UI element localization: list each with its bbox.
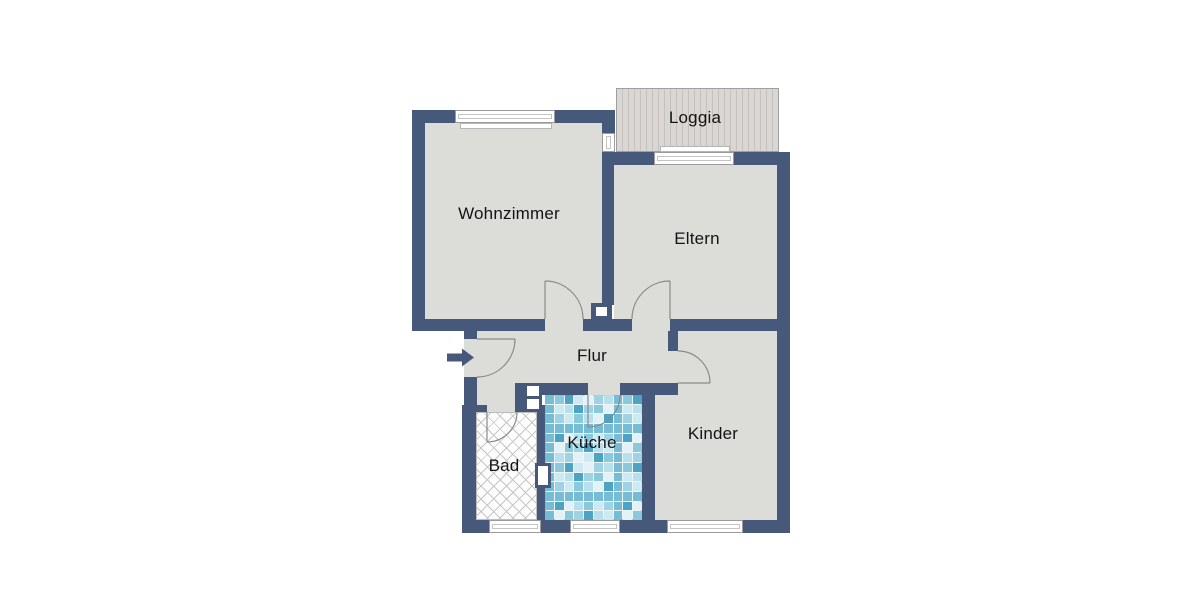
kitchen-tile (555, 414, 564, 423)
room-flur-floor (477, 331, 668, 383)
kitchen-tile (555, 424, 564, 433)
kitchen-tile (584, 482, 593, 491)
kitchen-tile (633, 434, 642, 443)
kitchen-tile (633, 453, 642, 462)
window (667, 520, 743, 533)
kitchen-tile (604, 511, 613, 520)
kitchen-tile (565, 395, 574, 404)
kitchen-tile (594, 453, 603, 462)
kitchen-tile (555, 473, 564, 482)
kitchen-tile (633, 414, 642, 423)
kitchen-tile (633, 473, 642, 482)
wall-segment (412, 110, 425, 331)
floor-gap (668, 351, 678, 383)
kitchen-tile (584, 395, 593, 404)
kitchen-tile (614, 482, 623, 491)
room-label-kinder: Kinder (688, 424, 738, 444)
window-sill (460, 123, 552, 129)
kitchen-tile (604, 424, 613, 433)
wall-segment (464, 319, 477, 339)
wall-segment (464, 377, 477, 405)
kitchen-tile (594, 482, 603, 491)
room-kinder-floor (655, 395, 777, 520)
window (455, 110, 555, 123)
kitchen-tile (555, 502, 564, 511)
kitchen-tile (584, 453, 593, 462)
kitchen-tile (584, 424, 593, 433)
kitchen-tile (594, 492, 603, 501)
kitchen-tile (555, 463, 564, 472)
kitchen-tile (584, 492, 593, 501)
kitchen-tile (565, 482, 574, 491)
kitchen-tile (574, 463, 583, 472)
kitchen-tile (623, 405, 632, 414)
kitchen-tile (574, 395, 583, 404)
kitchen-tile (604, 463, 613, 472)
shaft-inner (527, 386, 539, 396)
kitchen-tile (623, 434, 632, 443)
room-label-loggia: Loggia (669, 108, 721, 128)
kitchen-tile (584, 511, 593, 520)
kitchen-tile (574, 511, 583, 520)
kitchen-tile (574, 473, 583, 482)
kitchen-tile (614, 414, 623, 423)
room-kinder-floor-upper (678, 331, 777, 395)
kitchen-tile (594, 414, 603, 423)
wall-segment (412, 319, 545, 331)
kitchen-tile (604, 482, 613, 491)
kitchen-tile (623, 482, 632, 491)
kitchen-tile (565, 492, 574, 501)
kitchen-tile (594, 511, 603, 520)
kitchen-tile (555, 395, 564, 404)
room-label-flur: Flur (577, 346, 607, 366)
room-label-wohnzimmer: Wohnzimmer (458, 204, 560, 224)
room-label-eltern: Eltern (674, 229, 720, 249)
kitchen-tile (574, 502, 583, 511)
kitchen-tile (633, 502, 642, 511)
kitchen-tile (565, 405, 574, 414)
kitchen-tile (555, 453, 564, 462)
wall-segment (412, 110, 455, 123)
kitchen-tile (633, 405, 642, 414)
kitchen-tile (614, 395, 623, 404)
kitchen-tile (565, 511, 574, 520)
kitchen-tile (633, 482, 642, 491)
floor-gap (545, 319, 583, 331)
kitchen-tile (614, 424, 623, 433)
wall-segment (602, 152, 654, 165)
kitchen-tile (574, 492, 583, 501)
kitchen-tile (604, 453, 613, 462)
kitchen-tile (594, 502, 603, 511)
wall-segment (670, 319, 777, 331)
wall-segment (620, 520, 667, 533)
kitchen-tile (604, 405, 613, 414)
kitchen-tile (614, 453, 623, 462)
kitchen-tile (545, 492, 554, 501)
kitchen-tile (574, 482, 583, 491)
window (570, 520, 620, 533)
room-label-kueche: Küche (567, 433, 616, 453)
kitchen-tile (565, 473, 574, 482)
kitchen-tile (584, 405, 593, 414)
kitchen-tile (574, 453, 583, 462)
kitchen-tile (623, 395, 632, 404)
kitchen-tile (614, 463, 623, 472)
floor-gap (632, 319, 670, 331)
kitchen-tile (565, 502, 574, 511)
kitchen-tile (614, 511, 623, 520)
room-label-bad: Bad (489, 456, 520, 476)
floor-gap (588, 383, 620, 395)
kitchen-tile (584, 414, 593, 423)
wall-segment (473, 405, 487, 412)
kitchen-tile (594, 424, 603, 433)
kitchen-tile (604, 502, 613, 511)
window (489, 520, 541, 533)
wall-segment (642, 383, 655, 520)
wall-segment (602, 152, 614, 305)
kitchen-tile (604, 395, 613, 404)
kitchen-tile (545, 434, 554, 443)
window-sill (660, 146, 730, 152)
kitchen-tile (555, 511, 564, 520)
kitchen-tile (545, 414, 554, 423)
kitchen-tile (545, 511, 554, 520)
kitchen-tile (623, 473, 632, 482)
wall-segment (602, 110, 615, 133)
kitchen-tile (545, 443, 554, 452)
kitchen-tile (565, 453, 574, 462)
kitchen-tile (623, 502, 632, 511)
kitchen-tile (633, 463, 642, 472)
kitchen-tile (565, 424, 574, 433)
kitchen-tile (623, 453, 632, 462)
floor-gap (464, 339, 477, 377)
kitchen-tile (633, 511, 642, 520)
kitchen-tile (623, 463, 632, 472)
wall-segment (542, 383, 588, 395)
kitchen-tile (594, 405, 603, 414)
kitchen-tile (574, 414, 583, 423)
kitchen-tile (545, 424, 554, 433)
kitchen-tile (633, 443, 642, 452)
kitchen-tile (555, 405, 564, 414)
kitchen-tile (594, 473, 603, 482)
wall-segment (777, 152, 790, 533)
kitchen-tile (565, 463, 574, 472)
kitchen-tile (623, 414, 632, 423)
floor-plan: Wohnzimmer Loggia Eltern Flur Bad Küche … (0, 0, 1200, 600)
window (602, 133, 615, 152)
kitchen-tile (565, 414, 574, 423)
wall-segment (462, 405, 476, 533)
wall-segment (743, 520, 790, 533)
kitchen-tile (623, 424, 632, 433)
kitchen-tile (614, 405, 623, 414)
shaft-inner (538, 466, 548, 485)
room-kueche-floor (545, 395, 642, 520)
kitchen-tile (594, 463, 603, 472)
kitchen-tile (545, 453, 554, 462)
kitchen-tile (614, 492, 623, 501)
kitchen-tile (584, 463, 593, 472)
wall-segment (668, 331, 678, 351)
kitchen-tile (633, 395, 642, 404)
wall-segment (462, 520, 489, 533)
kitchen-tile (594, 395, 603, 404)
wall-segment (583, 319, 632, 331)
kitchen-tile (545, 395, 554, 404)
kitchen-tile (574, 405, 583, 414)
kitchen-tile (623, 511, 632, 520)
kitchen-tile (584, 473, 593, 482)
kitchen-tile (555, 482, 564, 491)
kitchen-tile (574, 424, 583, 433)
kitchen-tile (545, 405, 554, 414)
wall-segment (541, 520, 570, 533)
kitchen-tile (555, 434, 564, 443)
shaft-inner (596, 307, 607, 316)
kitchen-tile (623, 443, 632, 452)
kitchen-tile (614, 502, 623, 511)
kitchen-tile (604, 473, 613, 482)
kitchen-tile (545, 502, 554, 511)
kitchen-tile (614, 473, 623, 482)
shaft-inner (527, 399, 539, 409)
window (654, 152, 734, 165)
kitchen-tile (584, 502, 593, 511)
kitchen-tile (633, 492, 642, 501)
kitchen-tile (555, 492, 564, 501)
kitchen-tile (604, 414, 613, 423)
kitchen-tile (633, 424, 642, 433)
kitchen-tile (555, 443, 564, 452)
kitchen-tile (623, 492, 632, 501)
kitchen-tile (604, 492, 613, 501)
